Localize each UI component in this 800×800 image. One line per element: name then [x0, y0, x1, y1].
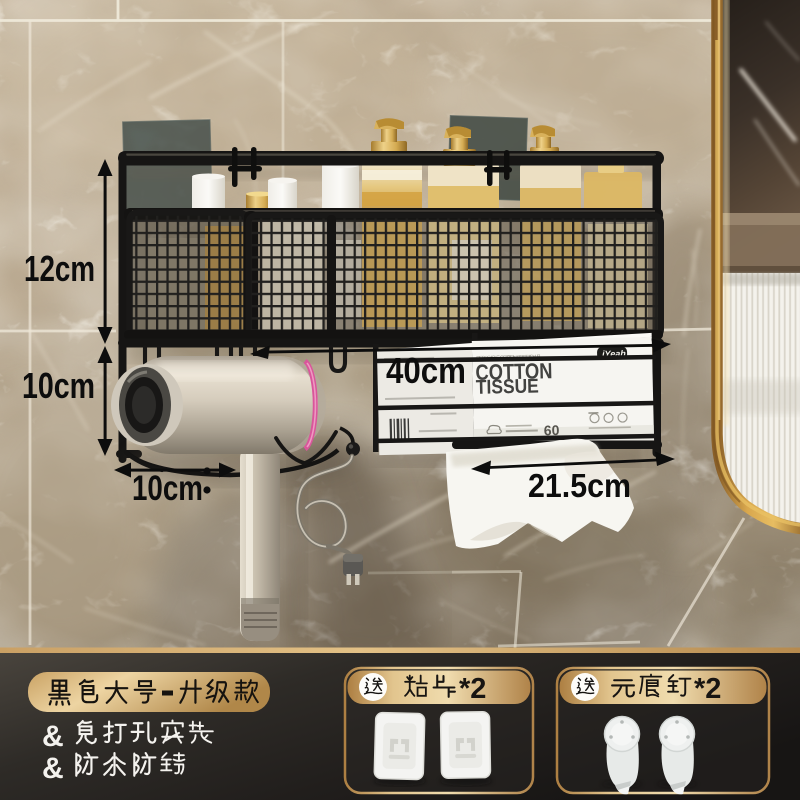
svg-text:21.5cm: 21.5cm: [528, 467, 631, 504]
svg-text:10cm: 10cm: [22, 365, 95, 406]
svg-text:40cm: 40cm: [386, 350, 466, 391]
svg-text:&: &: [42, 720, 64, 753]
svg-text:&: &: [42, 752, 64, 785]
svg-text:10cm: 10cm: [132, 469, 203, 508]
svg-text:TISSUE: TISSUE: [476, 375, 539, 398]
svg-text:12cm: 12cm: [24, 248, 95, 289]
svg-text:*2: *2: [459, 673, 486, 705]
svg-text:*2: *2: [694, 673, 721, 705]
